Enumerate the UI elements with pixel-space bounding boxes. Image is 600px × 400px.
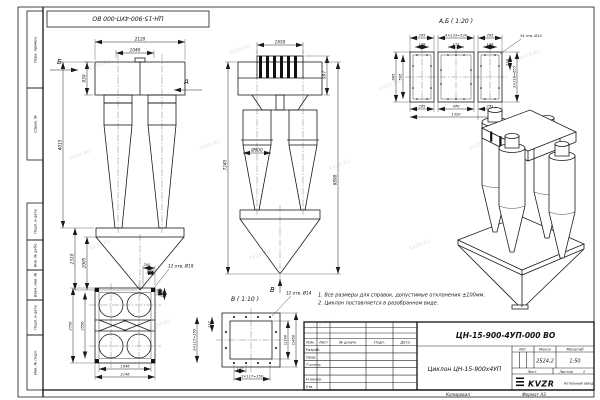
dim-v-117l: 117 bbox=[208, 320, 212, 328]
mass-label: Масса bbox=[539, 348, 550, 352]
dim-plan-holes: 12 отв. Ø18 bbox=[168, 264, 194, 269]
margin-column: Перв. примен. Справ. № Подп. и дата Инв.… bbox=[27, 11, 43, 390]
change-col-data: Дата bbox=[399, 341, 409, 345]
margin-label: Инв. № дубл. bbox=[34, 243, 38, 268]
dim-v-sq-in: □390 bbox=[284, 334, 288, 345]
plan-view: 2756 2556 1946 2146 200 140 140 200 12 о… bbox=[69, 263, 194, 380]
watermark: KVZR.RU bbox=[409, 239, 432, 252]
dim-ab-685: 685 bbox=[392, 73, 396, 81]
dim-v-holes: 12 отв. Ø14 bbox=[286, 291, 312, 296]
dim-front-top: 1650 bbox=[275, 40, 286, 45]
plan-outline bbox=[95, 288, 155, 363]
dim-ab-holes: 34 отв. Ø14 bbox=[520, 33, 543, 38]
dim-plan-200: 200 bbox=[144, 263, 152, 267]
dim-ab-133: 133 bbox=[453, 43, 461, 47]
watermark: KVZR.RU bbox=[519, 49, 542, 62]
sheet-footer: Копировал Формат А3 bbox=[446, 392, 546, 397]
watermark: KVZR.RU bbox=[309, 319, 332, 332]
dim-side-header: 930 bbox=[82, 74, 87, 82]
dim-plan-140v: 140 bbox=[156, 288, 160, 296]
stamp-text: ЦН-15-900-4УП-000 ВО bbox=[92, 15, 163, 22]
note-line-1: 1. Все размеры для справок, допустимые о… bbox=[318, 293, 485, 299]
sig-row-tkontr: Т.контр. bbox=[306, 363, 322, 367]
flange-ab-view: А,Б ( 1:20 ) 295 4×133=530 295 148 133 1… bbox=[392, 18, 543, 120]
margin-label: Подп. и дата bbox=[34, 305, 38, 329]
dim-side-hopper: 2310 bbox=[70, 253, 75, 264]
dim-plan-2756: 2756 bbox=[69, 321, 73, 331]
watermark: KVZR.RU bbox=[149, 319, 172, 332]
sig-row-prov: Пров. bbox=[306, 355, 316, 359]
margin-label: Взам. инв. № bbox=[34, 273, 38, 298]
dim-front-dia: Ø900 bbox=[250, 148, 263, 153]
dim-plan-200v: 200 bbox=[160, 290, 164, 298]
sig-row-nkontr: Н.контр. bbox=[306, 378, 322, 382]
dim-side-top: 2120 bbox=[135, 37, 146, 42]
dim-front-right: 6898 bbox=[333, 174, 338, 185]
note-line-2: 2. Циклон поставляется в разобранном вид… bbox=[318, 301, 438, 307]
dim-front-inlet: 997 bbox=[322, 71, 327, 79]
drawing-sheet: KVZR.RU KVZR.RU KVZR.RU KVZR.RU KVZR.RU … bbox=[0, 0, 600, 400]
drawing-canvas: KVZR.RU KVZR.RU KVZR.RU KVZR.RU KVZR.RU … bbox=[0, 0, 600, 400]
dim-ab-655: 3×218=655 bbox=[512, 65, 516, 88]
sig-row-razrab: Разраб. bbox=[306, 348, 320, 352]
scale-value: 1:50 bbox=[569, 359, 580, 365]
margin-label: Перв. примен. bbox=[34, 36, 38, 63]
margin-label: Справ. № bbox=[34, 115, 38, 133]
footer-copied: Копировал bbox=[446, 392, 470, 397]
dim-side-inner: 1040 bbox=[130, 48, 141, 53]
logo-icon bbox=[516, 378, 524, 380]
sig-row-utv: Утв. bbox=[306, 385, 314, 389]
logo-text: KVZR bbox=[528, 380, 554, 389]
notes: 1. Все размеры для справок, допустимые о… bbox=[318, 293, 485, 307]
dim-v-117b: 117 bbox=[237, 367, 245, 371]
watermark: KVZR.RU bbox=[89, 59, 112, 72]
dim-side-cone: 2005 bbox=[82, 257, 87, 268]
dim-v-pitch-b: 3×117=350 bbox=[241, 374, 264, 378]
change-col-izm: Изм. bbox=[306, 341, 314, 345]
dim-plan-140: 140 bbox=[147, 269, 155, 273]
doc-name: Циклон ЦН-15-900х4УП bbox=[428, 366, 502, 373]
dim-ab-295b: 295 bbox=[487, 34, 495, 38]
flange-v-view: В ( 1:10 ) 117 3×117=350 117 3×117=350 1… bbox=[193, 291, 312, 382]
margin-label: Инв. № подл. bbox=[34, 350, 38, 375]
dim-ab-530: 4×133=530 bbox=[445, 34, 468, 38]
watermark: KVZR.RU bbox=[229, 44, 252, 57]
dim-plan-2556: 2556 bbox=[81, 321, 85, 331]
dim-ab-148b: 148 bbox=[487, 43, 495, 47]
dim-ab-1320: 1320 bbox=[451, 112, 461, 116]
dim-front-left: 7245 bbox=[223, 159, 228, 170]
dim-plan-1946: 1946 bbox=[120, 365, 130, 369]
front-view: 1650 997 Ø900 7245 6898 В bbox=[223, 40, 342, 295]
dim-ab-235a: 235 bbox=[419, 105, 427, 109]
change-col-docnum: № докум. bbox=[338, 341, 357, 345]
dim-ab-295a: 295 bbox=[419, 34, 427, 38]
dim-ab-148a: 148 bbox=[419, 43, 427, 47]
sheets-value: 1 bbox=[583, 370, 585, 374]
dim-ab-470: 470 bbox=[453, 105, 461, 109]
watermark: KVZR.RU bbox=[249, 249, 272, 262]
sheets-label: Листов bbox=[558, 370, 572, 374]
top-stamp: ЦН-15-900-4УП-000 ВО bbox=[47, 11, 209, 27]
flange-v-title: В ( 1:10 ) bbox=[231, 296, 259, 303]
change-col-podp: Подп. bbox=[374, 341, 385, 345]
watermark: KVZR.RU bbox=[89, 239, 112, 252]
dim-plan-2146: 2146 bbox=[120, 373, 130, 377]
margin-label: Подп. и дата bbox=[34, 209, 38, 233]
view-arrow-a-label: А bbox=[183, 78, 189, 86]
title-block: Изм. Лист № докум. Подп. Дата Разраб. Пр… bbox=[304, 322, 594, 390]
change-col-list: Лист bbox=[318, 341, 329, 345]
dim-v-pitch-l: 3×117=350 bbox=[193, 328, 197, 351]
watermark: KVZR.RU bbox=[69, 149, 92, 162]
mass-value: 2524,2 bbox=[536, 359, 554, 365]
dim-ab-218: 218 bbox=[506, 58, 510, 66]
footer-format: Формат А3 bbox=[522, 392, 546, 397]
side-view: 2120 1040 930 4015 2310 2005 Б А bbox=[50, 37, 202, 297]
doc-designation: ЦН-15-900-4УП-000 ВО bbox=[456, 331, 556, 340]
sheet-label: Лист bbox=[526, 370, 537, 374]
watermark: KVZR.RU bbox=[329, 159, 352, 172]
dim-side-body: 4015 bbox=[58, 139, 63, 150]
dim-v-sq-out: □460 bbox=[292, 334, 296, 345]
view-arrow-b-label: Б bbox=[57, 58, 62, 66]
dim-ab-595: 595 bbox=[399, 73, 403, 81]
scale-label: Масштаб bbox=[566, 348, 584, 352]
isometric-view bbox=[458, 108, 584, 310]
view-arrow-v-label: В bbox=[270, 286, 275, 294]
flange-ab-title: А,Б ( 1:20 ) bbox=[438, 18, 473, 25]
company-name: Котельный завод bbox=[564, 382, 594, 386]
lit-label: Лит. bbox=[518, 348, 527, 352]
watermark: KVZR.RU bbox=[199, 139, 222, 152]
